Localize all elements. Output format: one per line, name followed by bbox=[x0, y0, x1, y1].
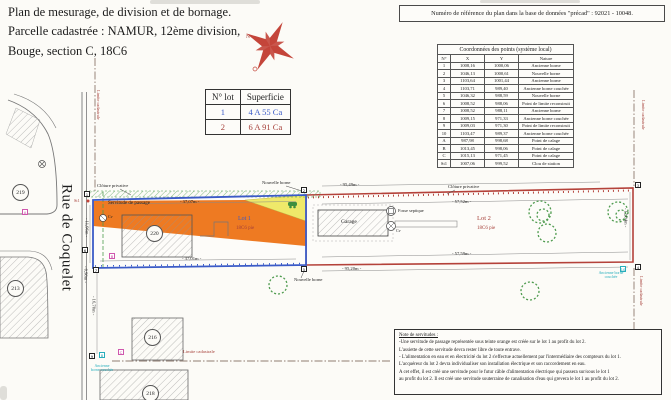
dim-lot1-left: - 11,96m - bbox=[84, 218, 89, 237]
coord-cell: Ancienne borne couchée bbox=[519, 115, 574, 123]
precad-reference-box: Numéro de référence du plan dans la base… bbox=[399, 5, 665, 22]
lot2-cadastre-label: 18C6 pie bbox=[477, 226, 495, 232]
lot2-shape bbox=[269, 182, 633, 300]
coord-cell: 1008,16 bbox=[451, 62, 485, 70]
coord-row: 21046,131000,61Nouvelle borne bbox=[438, 70, 574, 78]
coord-row: 81009,15971,33Ancienne borne couchée bbox=[438, 115, 574, 123]
inspection-chamber-icon bbox=[387, 222, 396, 231]
coord-cell: 1046,32 bbox=[451, 92, 485, 100]
coord-cell: Nouvelle borne bbox=[519, 70, 574, 78]
cloture-label-lot1: Clôture privative bbox=[97, 183, 128, 188]
point-box-10: 10 bbox=[620, 266, 626, 272]
point-box-3: 3 bbox=[635, 182, 641, 188]
coord-row: A987,98998,68Point de calage bbox=[438, 137, 574, 145]
coord-cell: B bbox=[438, 145, 451, 153]
coord-row: St11007,06999,52Clou de station bbox=[438, 160, 574, 168]
coord-cell: 1007,06 bbox=[451, 160, 485, 168]
coord-cell: 4 bbox=[438, 85, 451, 93]
coord-cell: Ancienne borne bbox=[519, 62, 574, 70]
station-mark bbox=[87, 200, 90, 203]
coord-cell: Point de limite reconstruit bbox=[519, 122, 574, 130]
coord-cell: 971,45 bbox=[485, 152, 519, 160]
title-line-1: Plan de mesurage, de division et de born… bbox=[8, 3, 240, 22]
point-box-B: B bbox=[109, 253, 115, 259]
compass-north-label: N bbox=[246, 34, 250, 40]
coordinates-table: Coordonnées des points (système local) N… bbox=[437, 44, 574, 168]
lot-table-row: 2 6 A 91 Ca bbox=[206, 120, 291, 135]
coord-header: N° bbox=[438, 55, 451, 63]
point-box-1: 1 bbox=[84, 191, 90, 197]
coord-cell: Ancienne borne bbox=[519, 77, 574, 85]
limite-cadastrale-label: Limite cadastrale bbox=[638, 276, 643, 306]
coord-cell: 989,40 bbox=[485, 85, 519, 93]
nouvelle-borne-label-top: Nouvelle borne bbox=[262, 180, 290, 185]
precad-reference-text: Numéro de référence du plan dans la base… bbox=[431, 10, 633, 17]
dim-lot2-top-inner: - 57,52m - bbox=[452, 199, 471, 204]
coord-cell: 2 bbox=[438, 70, 451, 78]
lot-col-header: Superficie bbox=[240, 90, 290, 105]
garage-label: Garage bbox=[341, 219, 357, 225]
coord-cell: 1015,13 bbox=[451, 152, 485, 160]
coord-header: Nature bbox=[519, 55, 574, 63]
coord-cell: 1008,52 bbox=[451, 100, 485, 108]
point-box-4: 4 bbox=[635, 264, 641, 270]
limite-cadastrale-label: Limite cadastrale bbox=[183, 349, 215, 354]
nouvelle-borne-label-bottom: Nouvelle borne bbox=[294, 277, 322, 282]
coord-cell: 999,52 bbox=[485, 160, 519, 168]
lot-number: 1 bbox=[206, 105, 241, 120]
coord-cell: 9 bbox=[438, 122, 451, 130]
note-line: A cet effet, il est créé une servitude p… bbox=[399, 369, 657, 376]
lot-number: 2 bbox=[206, 120, 241, 135]
point-box-8: 8 bbox=[99, 352, 105, 358]
coord-cell: 998,06 bbox=[485, 145, 519, 153]
title-line-2: Parcelle cadastrée : NAMUR, 12ème divisi… bbox=[8, 22, 240, 41]
document-title: Plan de mesurage, de division et de born… bbox=[8, 3, 240, 61]
point-box-5: 5 bbox=[301, 266, 307, 272]
coord-cell: 6 bbox=[438, 100, 451, 108]
dim-south-segment: - 16,70m - bbox=[91, 296, 96, 315]
parcel-circle-216: 216 bbox=[144, 329, 161, 346]
note-line: L'acquéreur du lot 2 devra individualise… bbox=[399, 361, 657, 368]
lot1-cadastre-label: 18C6 pie bbox=[236, 226, 254, 232]
coord-cell: A bbox=[438, 137, 451, 145]
dim-lot1-bottom: - 37,01m - bbox=[182, 256, 201, 261]
coord-cell: 1046,13 bbox=[451, 70, 485, 78]
limite-cadastrale-label: Limite cadastrale bbox=[640, 100, 645, 130]
coord-cell: 988,59 bbox=[485, 92, 519, 100]
coord-row: 61008,52988,06Point de limite reconstrui… bbox=[438, 100, 574, 108]
coord-cell: Point de calage bbox=[519, 137, 574, 145]
coord-row: 51046,32988,59Nouvelle borne bbox=[438, 92, 574, 100]
servitude-notes-box: Note de servitudes : -Une servitude de p… bbox=[394, 329, 662, 395]
coord-cell: 3 bbox=[438, 77, 451, 85]
coord-header: Y bbox=[485, 55, 519, 63]
survey-plan-page: Plan de mesurage, de division et de born… bbox=[0, 0, 671, 400]
ancienne-borne-couchee-label: Ancienne borne couchée bbox=[597, 271, 625, 280]
coord-cell: Point de calage bbox=[519, 152, 574, 160]
dim-lot2-right: - 12,04m - bbox=[623, 208, 628, 227]
limite-cadastrale-label: Limite cadastrale bbox=[95, 90, 100, 120]
lot-area: 6 A 91 Ca bbox=[240, 120, 290, 135]
parcel-circle-220: 220 bbox=[146, 225, 163, 242]
coord-header-row: N° X Y Nature bbox=[438, 55, 574, 63]
coord-cell: Point de calage bbox=[519, 145, 574, 153]
coord-cell: 1103,64 bbox=[451, 77, 485, 85]
coord-cell: 1103,47 bbox=[451, 130, 485, 138]
coord-cell: Nouvelle borne bbox=[519, 92, 574, 100]
coord-cell: 988,06 bbox=[485, 100, 519, 108]
lot1-label: Lot 1 bbox=[238, 216, 251, 223]
parcel-213-shape bbox=[0, 257, 48, 338]
lot-table-header-row: N° lot Superficie bbox=[206, 90, 291, 105]
coord-cell: 1 bbox=[438, 62, 451, 70]
note-line: -Une servitude de passage représentée so… bbox=[399, 339, 657, 346]
coord-row: 91009,03971,30Point de limite reconstrui… bbox=[438, 122, 574, 130]
parcel-circle-213: 213 bbox=[7, 280, 24, 297]
coord-row: 31103,641001,44Ancienne borne bbox=[438, 77, 574, 85]
coord-cell: 1008,52 bbox=[451, 107, 485, 115]
parcel-circle-219: 219 bbox=[12, 184, 29, 201]
point-box-C: C bbox=[118, 349, 124, 355]
coord-cell: 998,68 bbox=[485, 137, 519, 145]
dim-lot2-bottom-inner: - 57,59m - bbox=[452, 251, 471, 256]
coord-row: 11008,161000,06Ancienne borne bbox=[438, 62, 574, 70]
coord-table-title: Coordonnées des points (système local) bbox=[438, 45, 574, 55]
coord-row: 71008,52988,11Ancienne borne bbox=[438, 107, 574, 115]
inspection-chamber-icon bbox=[100, 215, 107, 222]
note-line: L'assiette de cette servitude devra rest… bbox=[399, 347, 657, 354]
lot-table-row: 1 4 A 55 Ca bbox=[206, 105, 291, 120]
coord-title-row: Coordonnées des points (système local) bbox=[438, 45, 574, 55]
coord-cell: 1001,44 bbox=[485, 77, 519, 85]
parcel-219-building bbox=[6, 108, 40, 148]
coord-cell: Point de limite reconstruit bbox=[519, 100, 574, 108]
coord-cell: 5 bbox=[438, 92, 451, 100]
cv-label: Cv bbox=[108, 215, 113, 220]
title-line-3: Bouge, section C, 18C6 bbox=[8, 42, 240, 61]
coord-cell: C bbox=[438, 152, 451, 160]
pipe bbox=[395, 221, 457, 227]
coord-cell: St1 bbox=[438, 160, 451, 168]
lot-area: 4 A 55 Ca bbox=[240, 105, 290, 120]
dim-lot2-bottom: - 95,20m - bbox=[342, 266, 361, 271]
coord-cell: Clou de station bbox=[519, 160, 574, 168]
coord-row: 101103,47989,37Ancienne borne couchée bbox=[438, 130, 574, 138]
compass-rose-icon bbox=[233, 9, 306, 82]
coord-cell: 988,11 bbox=[485, 107, 519, 115]
point-box-A: A bbox=[22, 209, 28, 215]
point-box-2: 2 bbox=[301, 187, 307, 193]
street-name-label: Rue de Coquelet bbox=[57, 184, 74, 291]
septic-tank-icon bbox=[387, 207, 396, 216]
dim-lot1-top: - 37,07m - bbox=[180, 199, 199, 204]
coord-cell: 987,98 bbox=[451, 137, 485, 145]
coord-cell: 1009,15 bbox=[451, 115, 485, 123]
cloture-label-lot2: Clôture privative bbox=[448, 184, 479, 189]
coord-cell: 1000,06 bbox=[485, 62, 519, 70]
coord-cell: 971,33 bbox=[485, 115, 519, 123]
lot-col-header: N° lot bbox=[206, 90, 241, 105]
coord-cell: 971,30 bbox=[485, 122, 519, 130]
coord-cell: Ancienne borne bbox=[519, 107, 574, 115]
coord-cell: 1103,71 bbox=[451, 85, 485, 93]
dim-lot2-top: - 95,49m - bbox=[340, 182, 359, 187]
ancienne-borne-couchee-label: Ancienne borne couchée bbox=[90, 364, 114, 373]
fosse-septique-label: Fosse septique bbox=[398, 208, 424, 213]
coord-cell: 1009,03 bbox=[451, 122, 485, 130]
dim-corner: - 0,98m - bbox=[83, 266, 88, 283]
coord-cell: 10 bbox=[438, 130, 451, 138]
coord-cell: Ancienne borne couchée bbox=[519, 130, 574, 138]
servitude-label: Servitude de passage bbox=[108, 201, 150, 207]
notes-title: Note de servitudes : bbox=[399, 332, 657, 339]
coord-row: C1015,13971,45Point de calage bbox=[438, 152, 574, 160]
coord-cell: 7 bbox=[438, 107, 451, 115]
coord-cell: 8 bbox=[438, 115, 451, 123]
lot2-label: Lot 2 bbox=[477, 215, 491, 222]
note-line: - L'alimentation en eau et en électricit… bbox=[399, 354, 657, 361]
point-box-7: 7 bbox=[93, 267, 99, 273]
coord-cell: Ancienne borne couchée bbox=[519, 85, 574, 93]
point-box-9: 9 bbox=[89, 353, 95, 359]
coord-row: 41103,71989,40Ancienne borne couchée bbox=[438, 85, 574, 93]
coord-cell: 1000,61 bbox=[485, 70, 519, 78]
lot-area-table: N° lot Superficie 1 4 A 55 Ca 2 6 A 91 C… bbox=[205, 89, 291, 135]
station-st1-label: St1 bbox=[74, 199, 80, 204]
coord-header: X bbox=[451, 55, 485, 63]
parcel-circle-218: 218 bbox=[142, 385, 159, 400]
note-line: au profit du lot 2. Il est créé une serv… bbox=[399, 376, 657, 383]
coord-cell: 1013,45 bbox=[451, 145, 485, 153]
coord-row: B1013,45998,06Point de calage bbox=[438, 145, 574, 153]
cv-label: Cv bbox=[396, 229, 401, 234]
coord-cell: 989,37 bbox=[485, 130, 519, 138]
point-box-6: 6 bbox=[82, 247, 88, 253]
utility-pole-icon bbox=[39, 161, 46, 168]
